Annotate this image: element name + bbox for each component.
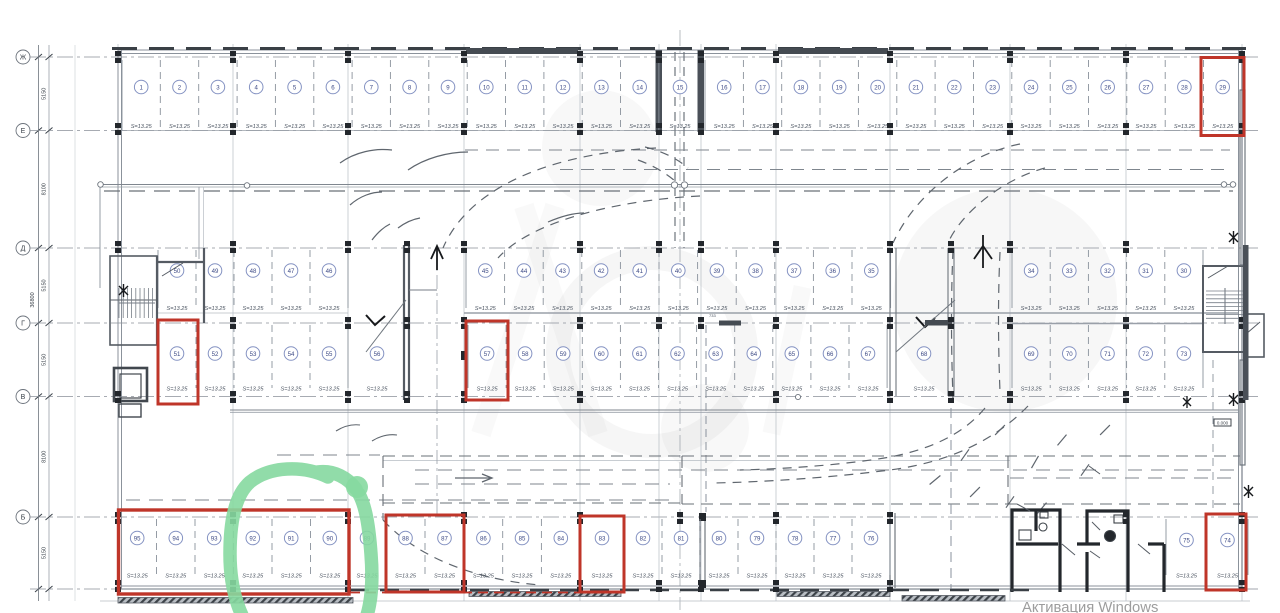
svg-text:72: 72 — [1142, 351, 1149, 358]
svg-text:30: 30 — [1181, 268, 1188, 275]
svg-text:S=13.25: S=13.25 — [790, 124, 812, 130]
svg-text:25: 25 — [1066, 84, 1073, 91]
svg-text:S=13.25: S=13.25 — [905, 124, 927, 130]
svg-text:S=13.25: S=13.25 — [1135, 306, 1157, 312]
svg-text:85: 85 — [519, 535, 526, 542]
svg-text:S=13.25: S=13.25 — [714, 124, 736, 130]
svg-text:S=13.25: S=13.25 — [167, 387, 189, 393]
svg-text:64: 64 — [750, 351, 757, 358]
svg-text:35: 35 — [868, 268, 875, 275]
svg-text:S=13.25: S=13.25 — [944, 124, 966, 130]
svg-text:S=13.25: S=13.25 — [633, 574, 655, 580]
svg-text:S=13.25: S=13.25 — [319, 306, 341, 312]
svg-text:733: 733 — [709, 313, 716, 318]
svg-text:38: 38 — [752, 268, 759, 275]
svg-text:5150: 5150 — [42, 88, 48, 100]
svg-text:S=13.25: S=13.25 — [861, 574, 883, 580]
svg-text:31: 31 — [1142, 268, 1149, 275]
svg-text:S=13.25: S=13.25 — [167, 306, 189, 312]
svg-text:82: 82 — [640, 535, 647, 542]
svg-text:S=13.25: S=13.25 — [204, 574, 226, 580]
svg-text:S=13.25: S=13.25 — [1021, 306, 1043, 312]
svg-text:S=13.25: S=13.25 — [747, 574, 769, 580]
svg-text:S=13.25: S=13.25 — [1021, 387, 1043, 393]
svg-text:S=13.25: S=13.25 — [823, 574, 845, 580]
svg-text:Е: Е — [21, 128, 26, 135]
svg-text:20: 20 — [874, 84, 881, 91]
svg-text:3: 3 — [216, 84, 220, 91]
svg-text:60: 60 — [598, 351, 605, 358]
svg-text:S=13.25: S=13.25 — [550, 574, 572, 580]
svg-text:56: 56 — [374, 351, 381, 358]
svg-text:S=13.25: S=13.25 — [592, 574, 614, 580]
svg-text:S=13.25: S=13.25 — [709, 574, 731, 580]
svg-text:S=13.25: S=13.25 — [1059, 124, 1081, 130]
svg-text:54: 54 — [288, 351, 295, 358]
svg-text:S=13.25: S=13.25 — [438, 124, 460, 130]
svg-text:S=13.25: S=13.25 — [513, 306, 535, 312]
svg-text:S=13.25: S=13.25 — [785, 574, 807, 580]
svg-text:S=13.25: S=13.25 — [367, 387, 389, 393]
svg-text:91: 91 — [288, 535, 295, 542]
svg-text:S=13.25: S=13.25 — [515, 387, 537, 393]
svg-text:S=13.25: S=13.25 — [1059, 306, 1081, 312]
svg-text:S=13.25: S=13.25 — [705, 387, 727, 393]
svg-text:83: 83 — [599, 535, 606, 542]
svg-text:29: 29 — [1219, 84, 1226, 91]
svg-text:Активация Windows: Активация Windows — [1022, 600, 1158, 613]
svg-text:S=13.25: S=13.25 — [319, 574, 341, 580]
svg-text:S=13.25: S=13.25 — [629, 124, 651, 130]
svg-text:14: 14 — [636, 84, 643, 91]
svg-text:S=13.25: S=13.25 — [475, 306, 497, 312]
svg-text:S=13.25: S=13.25 — [867, 124, 889, 130]
svg-text:5150: 5150 — [42, 547, 48, 559]
svg-text:8100: 8100 — [42, 451, 48, 463]
svg-text:S=13.25: S=13.25 — [477, 387, 499, 393]
svg-text:24: 24 — [1028, 84, 1035, 91]
svg-text:S=13.25: S=13.25 — [322, 124, 344, 130]
svg-text:S=13.25: S=13.25 — [914, 387, 936, 393]
svg-text:S=13.25: S=13.25 — [752, 124, 774, 130]
svg-text:32: 32 — [1104, 268, 1111, 275]
svg-text:52: 52 — [212, 351, 219, 358]
svg-text:S=13.25: S=13.25 — [1173, 306, 1195, 312]
svg-text:66: 66 — [827, 351, 834, 358]
svg-text:21: 21 — [913, 84, 920, 91]
svg-text:76: 76 — [868, 535, 875, 542]
svg-text:4: 4 — [255, 84, 259, 91]
svg-text:S=13.25: S=13.25 — [473, 574, 495, 580]
svg-text:6: 6 — [331, 84, 335, 91]
svg-text:S=13.25: S=13.25 — [552, 306, 574, 312]
svg-text:88: 88 — [402, 535, 409, 542]
svg-text:S=13.25: S=13.25 — [858, 387, 880, 393]
svg-text:27: 27 — [1143, 84, 1150, 91]
svg-text:S=13.25: S=13.25 — [820, 387, 842, 393]
svg-text:S=13.25: S=13.25 — [671, 574, 693, 580]
svg-text:12: 12 — [560, 84, 567, 91]
svg-text:S=13.25: S=13.25 — [242, 574, 264, 580]
svg-text:13: 13 — [598, 84, 605, 91]
svg-text:S=13.25: S=13.25 — [246, 124, 268, 130]
svg-text:73: 73 — [1181, 351, 1188, 358]
svg-text:S=13.25: S=13.25 — [822, 306, 844, 312]
svg-text:S=13.25: S=13.25 — [667, 387, 689, 393]
svg-text:S=13.25: S=13.25 — [395, 574, 417, 580]
svg-text:S=13.25: S=13.25 — [982, 124, 1004, 130]
svg-text:77: 77 — [830, 535, 837, 542]
svg-text:48: 48 — [250, 268, 257, 275]
svg-text:S=13.25: S=13.25 — [281, 306, 303, 312]
svg-text:36800: 36800 — [30, 292, 36, 307]
svg-text:S=13.25: S=13.25 — [670, 124, 692, 130]
svg-text:S=13.25: S=13.25 — [205, 306, 227, 312]
svg-text:S=13.25: S=13.25 — [284, 124, 306, 130]
svg-text:18: 18 — [798, 84, 805, 91]
svg-text:51: 51 — [174, 351, 181, 358]
svg-text:S=13.25: S=13.25 — [1097, 387, 1119, 393]
svg-text:40: 40 — [675, 268, 682, 275]
svg-text:70: 70 — [1066, 351, 1073, 358]
svg-text:S=13.25: S=13.25 — [1135, 387, 1157, 393]
svg-text:S=13.25: S=13.25 — [1021, 124, 1043, 130]
svg-text:S=13.25: S=13.25 — [165, 574, 187, 580]
svg-text:92: 92 — [249, 535, 256, 542]
svg-text:S=13.25: S=13.25 — [1059, 387, 1081, 393]
svg-text:S=13.25: S=13.25 — [591, 124, 613, 130]
svg-text:61: 61 — [636, 351, 643, 358]
svg-text:S=13.25: S=13.25 — [476, 124, 498, 130]
svg-text:S=13.25: S=13.25 — [243, 306, 265, 312]
svg-text:69: 69 — [1028, 351, 1035, 358]
svg-text:55: 55 — [326, 351, 333, 358]
svg-text:75: 75 — [1183, 537, 1190, 544]
svg-text:93: 93 — [211, 535, 218, 542]
svg-text:S=13.25: S=13.25 — [1217, 574, 1239, 580]
svg-text:5150: 5150 — [42, 354, 48, 366]
svg-text:Б: Б — [21, 514, 26, 521]
svg-text:36: 36 — [829, 268, 836, 275]
svg-text:S=13.25: S=13.25 — [131, 124, 153, 130]
svg-text:8100: 8100 — [42, 183, 48, 195]
svg-text:S=13.25: S=13.25 — [743, 387, 765, 393]
svg-text:1: 1 — [140, 84, 144, 91]
svg-text:10: 10 — [483, 84, 490, 91]
svg-text:S=13.25: S=13.25 — [668, 306, 690, 312]
svg-text:S=13.25: S=13.25 — [281, 574, 303, 580]
svg-text:S=13.25: S=13.25 — [553, 124, 575, 130]
svg-text:44: 44 — [521, 268, 528, 275]
svg-text:S=13.25: S=13.25 — [591, 306, 613, 312]
svg-text:90: 90 — [326, 535, 333, 542]
svg-text:S=13.25: S=13.25 — [399, 124, 421, 130]
svg-text:39: 39 — [714, 268, 721, 275]
svg-text:26: 26 — [1104, 84, 1111, 91]
svg-text:67: 67 — [865, 351, 872, 358]
svg-text:47: 47 — [288, 268, 295, 275]
svg-text:17: 17 — [759, 84, 766, 91]
svg-text:В: В — [21, 394, 26, 401]
svg-text:19: 19 — [836, 84, 843, 91]
svg-text:41: 41 — [636, 268, 643, 275]
svg-text:50: 50 — [174, 268, 181, 275]
svg-text:58: 58 — [522, 351, 529, 358]
svg-text:15: 15 — [677, 84, 684, 91]
svg-text:65: 65 — [788, 351, 795, 358]
svg-text:S=13.25: S=13.25 — [784, 306, 806, 312]
svg-text:S=13.25: S=13.25 — [514, 124, 536, 130]
svg-text:0.000: 0.000 — [1217, 421, 1229, 426]
svg-text:68: 68 — [921, 351, 928, 358]
svg-text:86: 86 — [480, 535, 487, 542]
svg-text:S=13.25: S=13.25 — [591, 387, 613, 393]
svg-text:S=13.25: S=13.25 — [512, 574, 534, 580]
svg-text:S=13.25: S=13.25 — [169, 124, 191, 130]
svg-text:22: 22 — [951, 84, 958, 91]
svg-text:33: 33 — [1066, 268, 1073, 275]
svg-text:S=13.25: S=13.25 — [243, 387, 265, 393]
svg-text:S=13.25: S=13.25 — [1174, 124, 1196, 130]
svg-text:S=13.25: S=13.25 — [361, 124, 383, 130]
svg-text:S=13.25: S=13.25 — [861, 306, 883, 312]
svg-text:37: 37 — [791, 268, 798, 275]
svg-text:94: 94 — [172, 535, 179, 542]
svg-text:59: 59 — [560, 351, 567, 358]
svg-text:49: 49 — [212, 268, 219, 275]
svg-text:Г: Г — [21, 320, 25, 327]
svg-text:S=13.25: S=13.25 — [281, 387, 303, 393]
svg-text:74: 74 — [1224, 537, 1231, 544]
svg-text:79: 79 — [754, 535, 761, 542]
svg-text:62: 62 — [674, 351, 681, 358]
svg-text:S=13.25: S=13.25 — [829, 124, 851, 130]
svg-text:87: 87 — [441, 535, 448, 542]
svg-text:71: 71 — [1104, 351, 1111, 358]
svg-text:11: 11 — [522, 84, 529, 91]
svg-text:S=13.25: S=13.25 — [319, 387, 341, 393]
svg-text:63: 63 — [712, 351, 719, 358]
svg-text:Ж: Ж — [20, 54, 27, 61]
svg-text:16: 16 — [721, 84, 728, 91]
svg-text:S=13.25: S=13.25 — [1136, 124, 1158, 130]
svg-text:95: 95 — [134, 535, 141, 542]
svg-text:S=13.25: S=13.25 — [706, 306, 728, 312]
svg-text:S=13.25: S=13.25 — [1212, 124, 1234, 130]
svg-text:81: 81 — [678, 535, 685, 542]
svg-text:5150: 5150 — [42, 279, 48, 291]
svg-text:45: 45 — [482, 268, 489, 275]
svg-text:S=13.25: S=13.25 — [629, 387, 651, 393]
svg-text:S=13.25: S=13.25 — [1097, 124, 1119, 130]
svg-text:S=13.25: S=13.25 — [127, 574, 149, 580]
svg-text:43: 43 — [559, 268, 566, 275]
svg-text:46: 46 — [326, 268, 333, 275]
svg-text:23: 23 — [989, 84, 996, 91]
svg-text:S=13.25: S=13.25 — [781, 387, 803, 393]
svg-text:S=13.25: S=13.25 — [553, 387, 575, 393]
svg-text:28: 28 — [1181, 84, 1188, 91]
svg-text:Д: Д — [21, 245, 26, 252]
svg-text:S=13.25: S=13.25 — [1097, 306, 1119, 312]
svg-text:S=13.25: S=13.25 — [207, 124, 229, 130]
svg-text:78: 78 — [792, 535, 799, 542]
svg-text:S=13.25: S=13.25 — [434, 574, 456, 580]
svg-text:42: 42 — [598, 268, 605, 275]
svg-text:84: 84 — [557, 535, 564, 542]
svg-text:S=13.25: S=13.25 — [205, 387, 227, 393]
svg-text:S=13.25: S=13.25 — [745, 306, 767, 312]
svg-text:S=13.25: S=13.25 — [1173, 387, 1195, 393]
svg-text:S=13.25: S=13.25 — [629, 306, 651, 312]
svg-text:34: 34 — [1028, 268, 1035, 275]
svg-text:80: 80 — [716, 535, 723, 542]
svg-text:53: 53 — [250, 351, 257, 358]
svg-text:S=13.25: S=13.25 — [1176, 574, 1198, 580]
svg-text:57: 57 — [484, 351, 491, 358]
